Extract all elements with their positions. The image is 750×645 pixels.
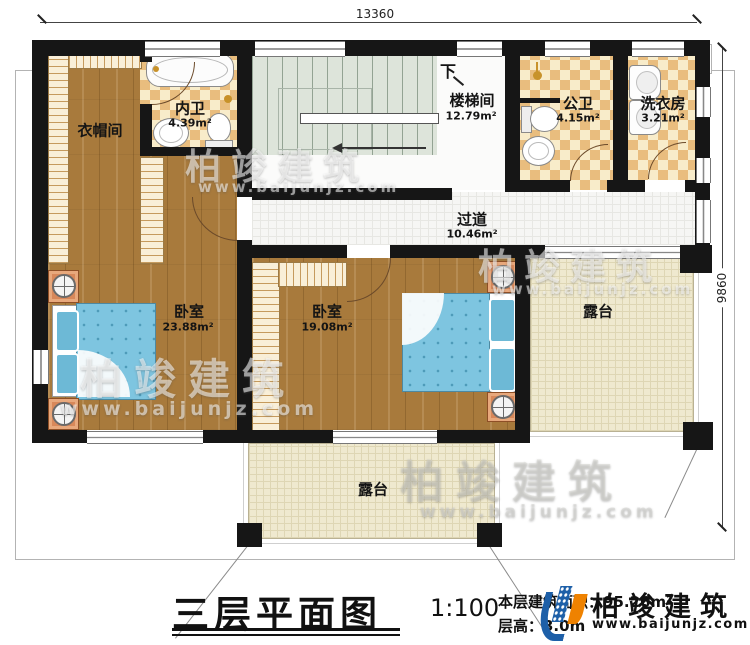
room-label-terrace-bottom: 露台 — [358, 479, 388, 500]
room-area-bedroom-center: 19.08m² — [301, 321, 352, 334]
wall-bedroom-left-east-lower — [237, 240, 252, 443]
window-top-2 — [255, 41, 345, 57]
wall-exterior-top — [32, 40, 710, 56]
floor-plan: 13360 9860 下 — [0, 0, 750, 645]
pillar — [680, 245, 712, 273]
room-label-corridor: 过道 — [457, 209, 487, 230]
terrace-right-floor — [530, 258, 694, 432]
sink-inner — [528, 142, 549, 160]
window-bottom-2 — [333, 431, 437, 444]
room-label-terrace-right: 露台 — [583, 301, 613, 322]
room-label-bedroom-left: 卧室 — [174, 301, 204, 322]
window-corridor-east — [696, 200, 711, 243]
wall-bottom-c — [437, 430, 530, 443]
stair-direction-arrow — [332, 143, 342, 153]
stair-railing — [300, 113, 439, 124]
wall-inner-bathroom-south — [140, 147, 252, 156]
washing-machine-door — [636, 71, 658, 94]
toilet — [530, 106, 559, 132]
faucet-icon — [224, 95, 232, 103]
wardrobe-hatch — [48, 54, 69, 264]
wall-inner-bathroom-west-b — [140, 104, 152, 147]
dimension-label-right: 9860 — [715, 269, 729, 308]
ceiling-lamp-icon — [52, 274, 76, 298]
wardrobe-hatch — [140, 157, 164, 264]
room-area-bedroom-left: 23.88m² — [162, 321, 213, 334]
faucet-stem — [536, 62, 538, 72]
room-label-laundry: 洗衣房 — [640, 93, 685, 114]
wall-bottom-a — [32, 430, 87, 443]
pillow — [55, 310, 79, 352]
room-area-public-bathroom: 4.15m² — [556, 112, 599, 125]
privacy-partition — [520, 98, 560, 103]
wall-stair-hall-east — [505, 40, 520, 190]
ceiling-lamp-icon — [52, 402, 76, 426]
room-area-corridor: 10.46m² — [446, 228, 497, 241]
ceiling-lamp-icon — [491, 395, 515, 419]
room-label-public-bathroom: 公卫 — [563, 93, 593, 114]
scale-label: 1:100 — [430, 594, 499, 622]
wall-bath-laundry-divider — [613, 50, 628, 180]
wardrobe-hatch — [278, 262, 347, 287]
wall-corridor-south-a — [237, 245, 347, 258]
window-top-5 — [632, 41, 684, 57]
window-bottom-1 — [87, 431, 203, 444]
room-label-cloakroom: 衣帽间 — [77, 120, 122, 141]
room-area-laundry: 3.21m² — [641, 112, 684, 125]
window-top-4 — [545, 41, 590, 57]
title-underline — [172, 628, 400, 631]
room-label-inner-bathroom: 内卫 — [175, 98, 205, 119]
window-top-3 — [457, 41, 502, 57]
logo-url: www.baijunjz.com — [592, 617, 749, 632]
wall-bedroom-left-east-upper — [237, 40, 252, 197]
pillar — [237, 523, 262, 547]
dimension-line-top — [40, 22, 697, 23]
window-right-2 — [696, 158, 711, 183]
terrace-railing-window — [545, 246, 680, 259]
wall-bedroom-center-east — [515, 245, 530, 443]
stair-direction-line — [342, 147, 426, 149]
wall-public-bathroom-south-a — [505, 180, 570, 192]
pillar — [477, 523, 502, 547]
wall-public-bathroom-south-b — [607, 180, 645, 192]
wall-bottom-b — [203, 430, 333, 443]
logo-icon — [538, 582, 588, 638]
title-underline — [172, 634, 400, 636]
pillow — [489, 298, 516, 343]
window-top-1 — [145, 41, 220, 57]
window-left-1 — [33, 350, 49, 384]
room-label-bedroom-center: 卧室 — [312, 301, 342, 322]
room-label-stairwell: 楼梯间 — [449, 90, 494, 111]
pillar — [683, 422, 713, 450]
stair-down-label: 下 — [440, 58, 456, 82]
window-right-1 — [696, 87, 711, 117]
wall-stairwell-south — [252, 188, 452, 200]
pillow — [489, 347, 516, 392]
faucet-icon — [533, 71, 542, 80]
wardrobe-hatch — [252, 262, 280, 432]
wall-terrace-stub — [530, 245, 545, 258]
room-area-inner-bathroom: 4.39m² — [168, 117, 211, 130]
room-area-stairwell: 12.79m² — [445, 110, 496, 123]
wall-corridor-south-b — [390, 245, 530, 258]
ceiling-lamp-icon — [491, 265, 515, 289]
dimension-label-top: 13360 — [351, 7, 399, 21]
pillow — [55, 353, 79, 395]
